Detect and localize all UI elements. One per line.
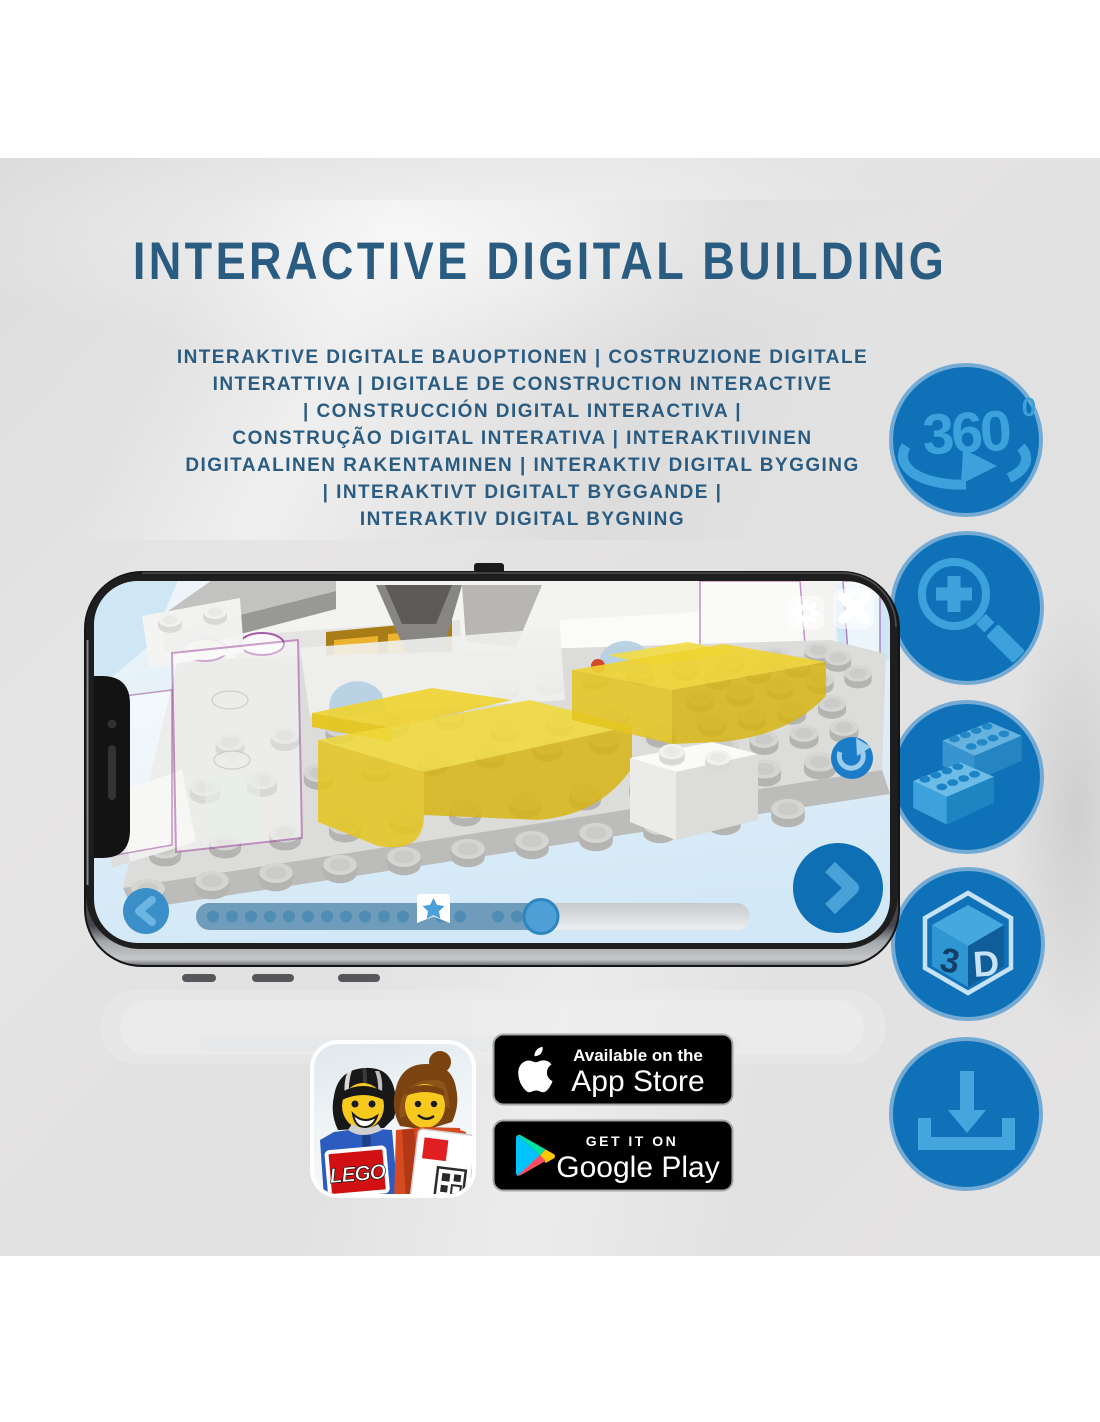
svg-text:D: D <box>972 942 1001 985</box>
svg-text:0: 0 <box>1022 392 1036 422</box>
svg-text:Available on the: Available on the <box>573 1046 703 1065</box>
svg-text:LEGO: LEGO <box>329 1160 387 1188</box>
svg-text:GET IT ON: GET IT ON <box>586 1133 679 1149</box>
svg-text:Google Play: Google Play <box>556 1151 719 1184</box>
svg-text:App Store: App Store <box>571 1065 704 1098</box>
